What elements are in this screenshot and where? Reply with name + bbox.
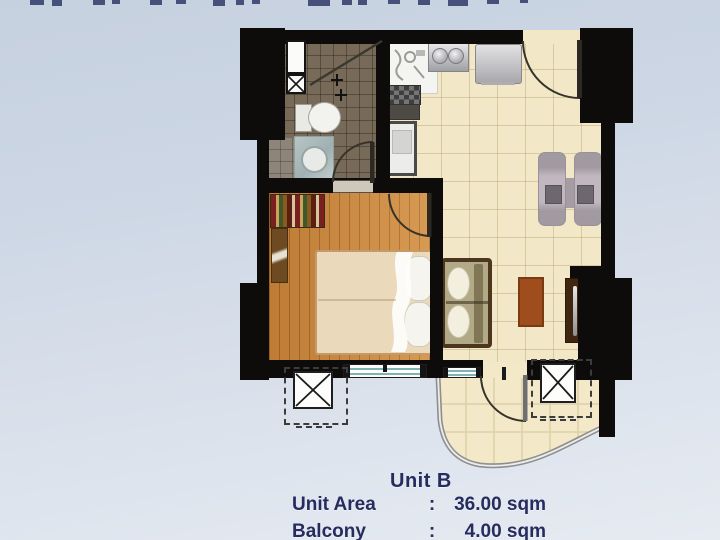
bed-sheet-fold: [391, 252, 413, 352]
spec-rows: Unit Area : 36.00 sqm Balcony : 4.00 sqm: [292, 494, 546, 540]
vent-x-lines: [288, 76, 304, 92]
door-swing-arc-balcony: [481, 376, 526, 421]
spec-separator: :: [424, 521, 440, 540]
unit-name: Unit B: [390, 470, 452, 493]
spec-separator: :: [424, 494, 440, 521]
balcony-door-leaf: [523, 375, 528, 421]
bedroom-door-leaf: [427, 193, 432, 237]
threshold-tick: [502, 367, 506, 380]
spec-label: Balcony: [292, 521, 424, 540]
spec-label: Unit Area: [292, 494, 424, 521]
floorplan-page: Unit B Unit Area : 36.00 sqm Balcony : 4…: [0, 0, 720, 540]
spec-row-balcony: Balcony : 4.00 sqm: [292, 521, 546, 540]
door-swing-arc-bathroom: [333, 142, 373, 182]
spec-row-unit-area: Unit Area : 36.00 sqm: [292, 494, 546, 521]
door-swing-arc-bedroom: [389, 194, 431, 236]
spec-value: 36.00 sqm: [440, 494, 546, 521]
plan-linework: [0, 0, 720, 540]
ac-x-lines: [296, 366, 573, 406]
shower-valve-marks: [331, 74, 347, 101]
door-swing-arc-entry: [523, 41, 580, 98]
spec-value: 4.00 sqm: [440, 521, 546, 540]
shower-partition-line: [310, 41, 382, 85]
bathroom-door-leaf: [370, 142, 375, 183]
faucet: [416, 50, 425, 56]
entry-door-leaf: [577, 40, 582, 98]
